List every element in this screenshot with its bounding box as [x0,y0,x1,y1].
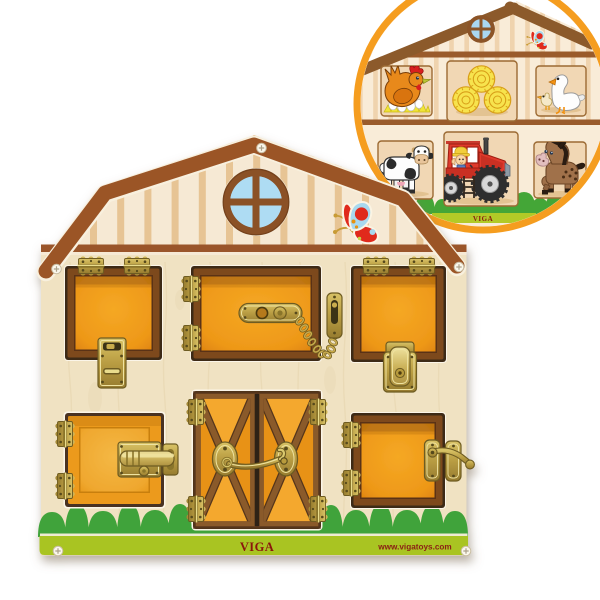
svg-text:VIGA: VIGA [473,215,493,223]
svg-text:VIGA: VIGA [240,540,274,554]
svg-text:www.vigatoys.com: www.vigatoys.com [377,543,451,552]
